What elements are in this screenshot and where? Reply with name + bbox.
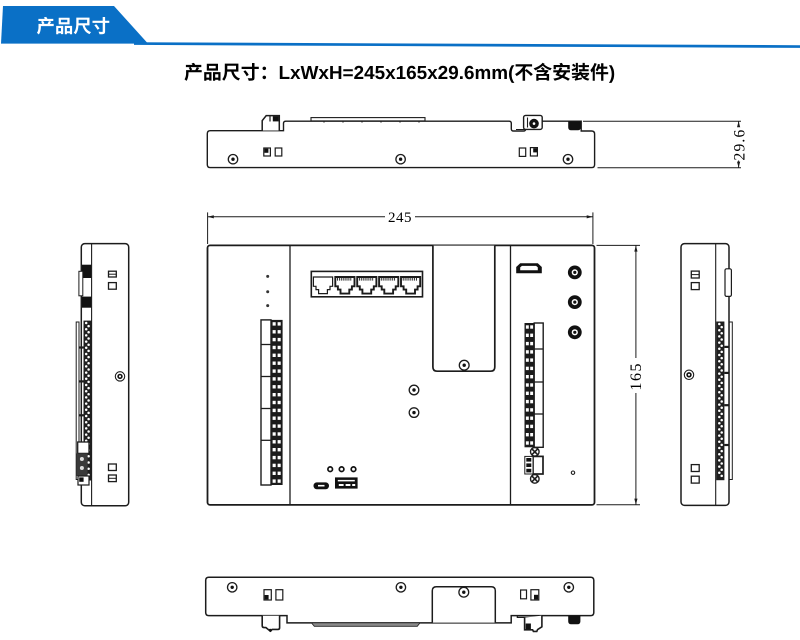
svg-text:165: 165 xyxy=(628,362,645,391)
svg-text:245: 245 xyxy=(388,210,412,226)
svg-text:29.6: 29.6 xyxy=(732,129,749,161)
